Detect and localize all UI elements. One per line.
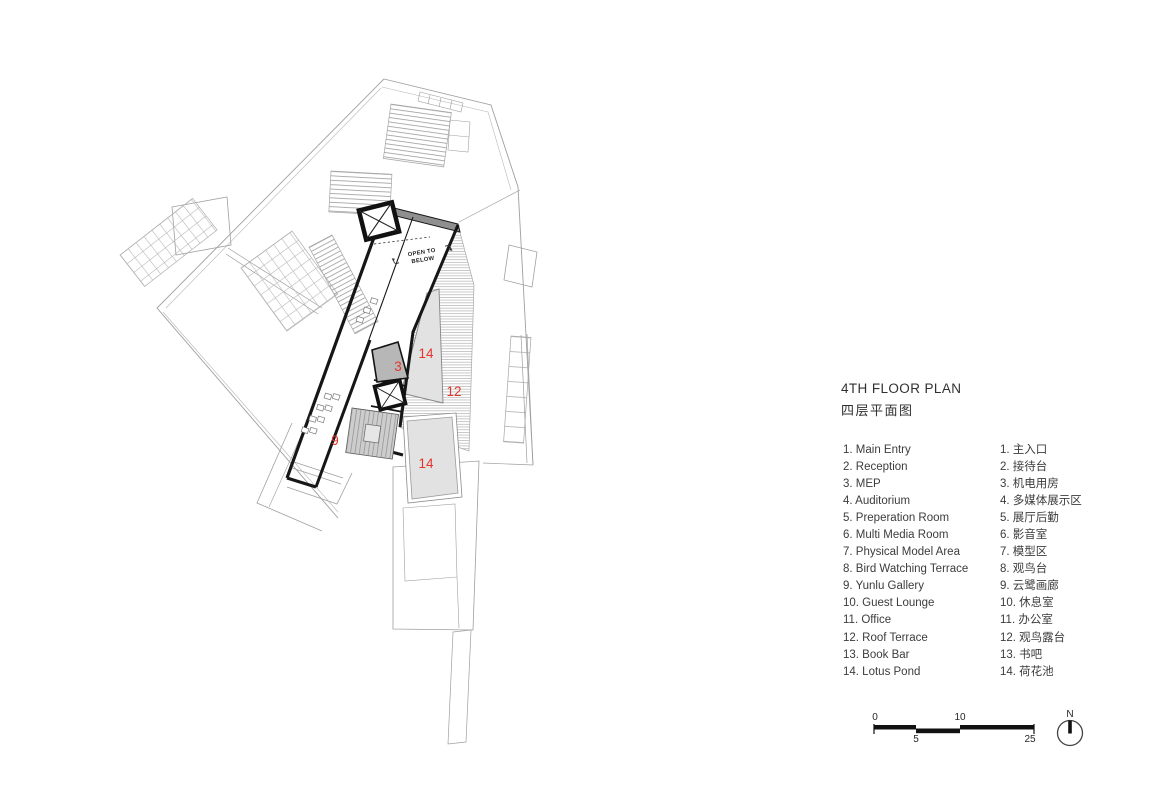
legend-item: 14. 荷花池	[1000, 664, 1082, 681]
floor-plan-drawing: OPEN TO BELOW 3 14 12 9 14 0 10 5 25	[0, 0, 1160, 791]
room-label-lotus-pond-lower: 14	[418, 456, 434, 471]
floor-plan-sheet: OPEN TO BELOW 3 14 12 9 14 0 10 5 25	[0, 0, 1160, 791]
legend-item: 14. Lotus Pond	[843, 664, 968, 681]
legend-item: 5. Preperation Room	[843, 510, 968, 527]
legend-item: 9. Yunlu Gallery	[843, 578, 968, 595]
room-label-mep: 3	[394, 359, 402, 374]
legend-item: 4. Auditorium	[843, 493, 968, 510]
legend-english: 1. Main Entry 2. Reception 3. MEP 4. Aud…	[843, 442, 968, 681]
scale-tick-0: 0	[872, 712, 878, 723]
scale-bar: 0 10 5 25	[872, 712, 1036, 745]
legend-item: 6. Multi Media Room	[843, 527, 968, 544]
legend-item: 7. Physical Model Area	[843, 544, 968, 561]
legend-item: 2. 接待台	[1000, 459, 1082, 476]
legend-item: 4. 多媒体展示区	[1000, 493, 1082, 510]
legend-item: 7. 模型区	[1000, 544, 1082, 561]
legend-item: 2. Reception	[843, 459, 968, 476]
balcony-strip-icon	[504, 336, 531, 443]
mep-room	[372, 342, 408, 382]
legend-item: 3. MEP	[843, 476, 968, 493]
scale-tick-10: 10	[954, 712, 966, 723]
legend-item: 10. 休息室	[1000, 595, 1082, 612]
legend-chinese: 1. 主入口 2. 接待台 3. 机电用房 4. 多媒体展示区 5. 展厅后勤 …	[1000, 442, 1082, 681]
scale-tick-5: 5	[913, 734, 919, 745]
legend-item: 5. 展厅后勤	[1000, 510, 1082, 527]
page-title: 4TH FLOOR PLAN	[841, 381, 961, 396]
legend-item: 8. Bird Watching Terrace	[843, 561, 968, 578]
parapet-band	[394, 208, 460, 232]
north-label: N	[1066, 709, 1073, 720]
right-tab-outline	[504, 245, 537, 287]
legend-item: 6. 影音室	[1000, 527, 1082, 544]
legend-item: 11. 办公室	[1000, 612, 1082, 629]
legend-item: 1. 主入口	[1000, 442, 1082, 459]
room-label-roof-terrace: 12	[446, 384, 461, 399]
legend-item: 12. 观鸟露台	[1000, 630, 1082, 647]
core-stair-icon	[346, 408, 399, 459]
legend-item: 13. Book Bar	[843, 647, 968, 664]
legend-item: 3. 机电用房	[1000, 476, 1082, 493]
legend-item: 13. 书吧	[1000, 647, 1082, 664]
elevator-icon	[374, 380, 405, 410]
path-strip-outline	[448, 630, 471, 744]
legend-item: 10. Guest Lounge	[843, 595, 968, 612]
legend-item: 9. 云鹭画廊	[1000, 578, 1082, 595]
room-label-lotus-pond-upper: 14	[418, 346, 434, 361]
legend-item: 12. Roof Terrace	[843, 630, 968, 647]
void-dashed-line	[374, 237, 430, 244]
scale-tick-25: 25	[1024, 734, 1036, 745]
legend-item: 11. Office	[843, 612, 968, 629]
room-label-yunlu-gallery: 9	[331, 433, 339, 448]
legend-item: 1. Main Entry	[843, 442, 968, 459]
north-arrow-icon: N	[1058, 709, 1083, 746]
elevator-icon	[359, 202, 399, 239]
page-title-zh: 四层平面图	[841, 400, 914, 419]
legend-item: 8. 观鸟台	[1000, 561, 1082, 578]
